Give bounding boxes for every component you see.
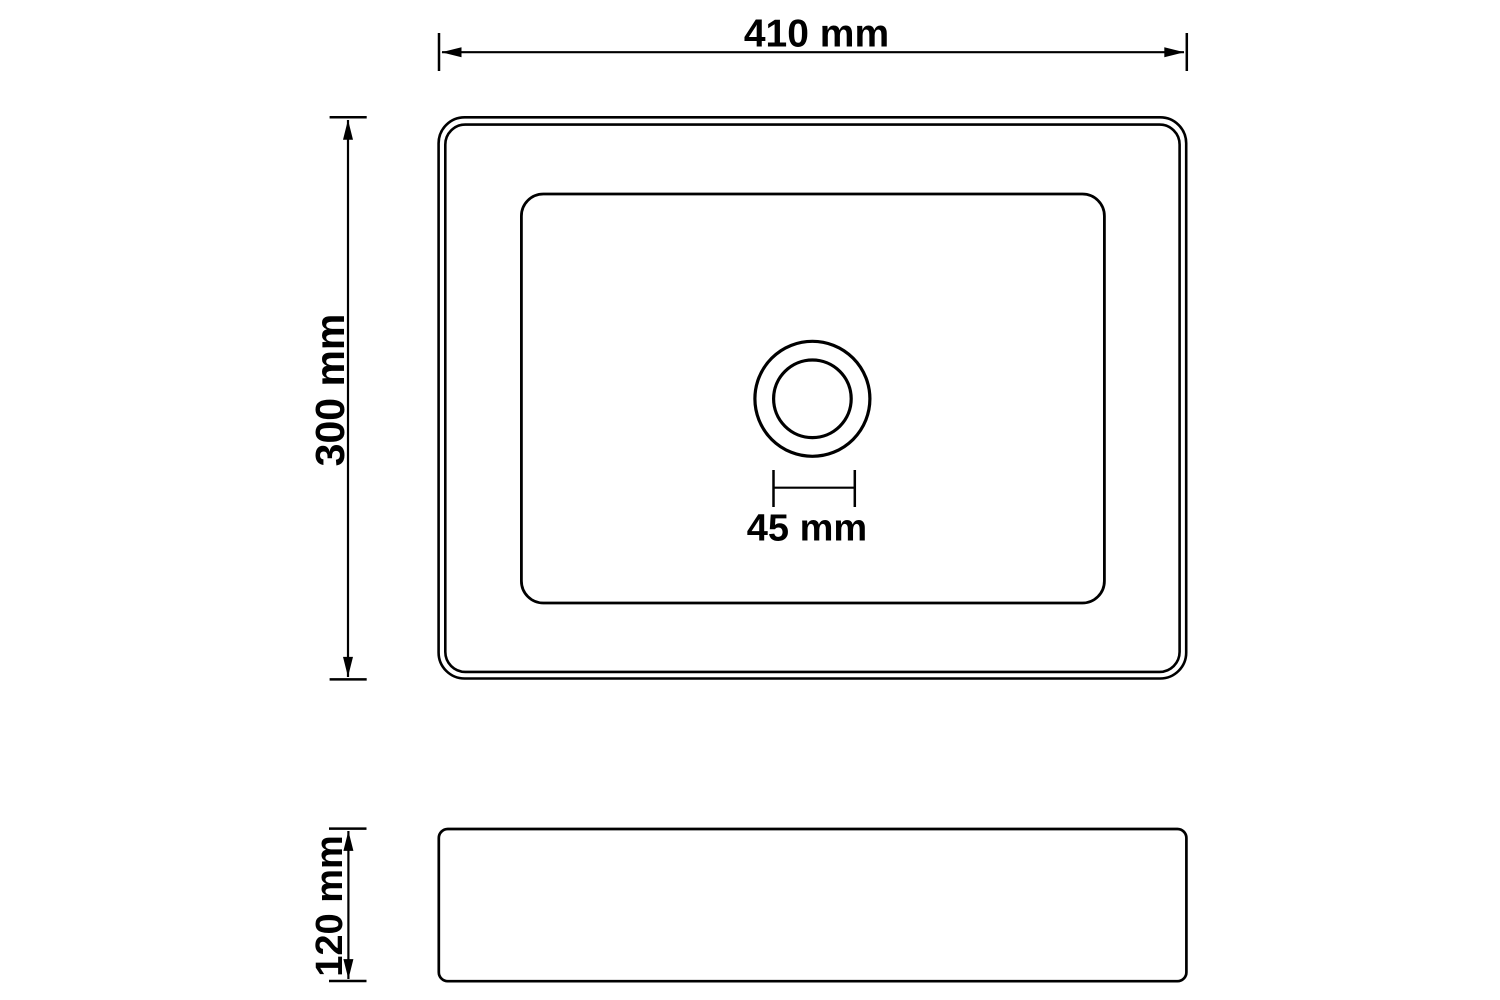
svg-text:300 mm: 300 mm bbox=[307, 314, 353, 467]
svg-text:120 mm: 120 mm bbox=[309, 835, 351, 977]
svg-text:410 mm: 410 mm bbox=[744, 13, 889, 56]
svg-text:45 mm: 45 mm bbox=[747, 508, 867, 550]
